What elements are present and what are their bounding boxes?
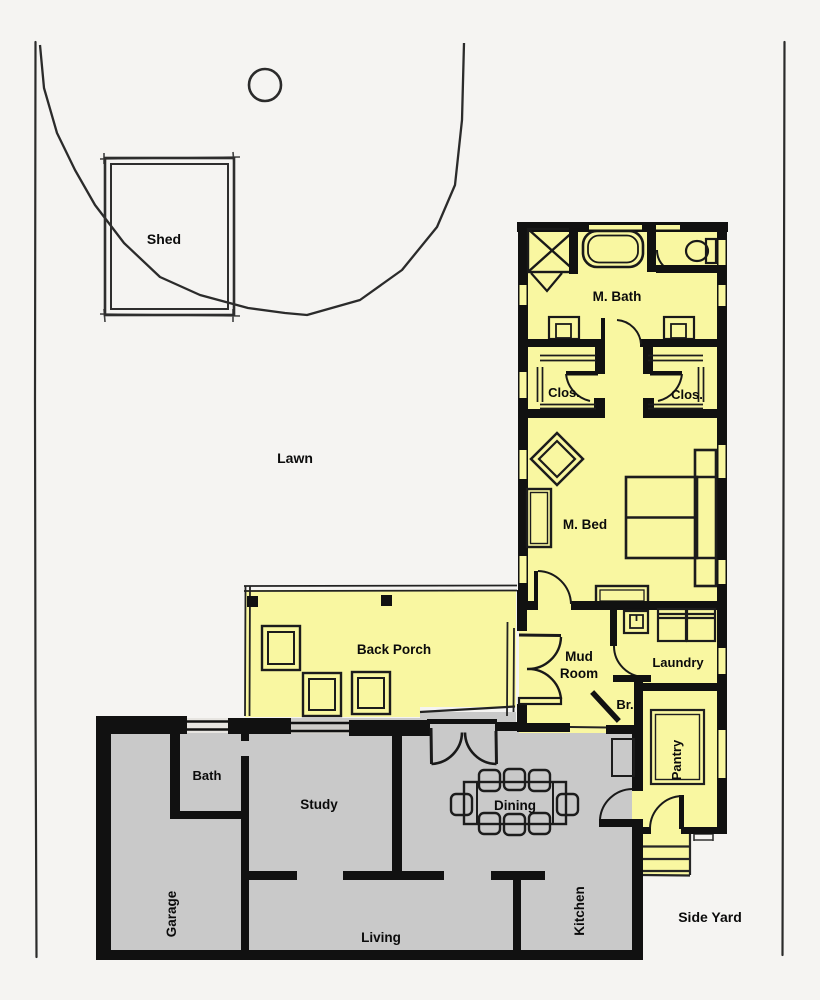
svg-text:M. Bath: M. Bath (593, 289, 642, 304)
svg-text:Lawn: Lawn (277, 450, 313, 466)
svg-text:Side Yard: Side Yard (678, 909, 742, 925)
svg-text:Garage: Garage (164, 890, 179, 937)
svg-text:Shed: Shed (147, 231, 181, 247)
svg-text:Bath: Bath (193, 768, 222, 783)
svg-text:Br.: Br. (616, 697, 633, 712)
svg-text:Dining: Dining (494, 798, 536, 813)
svg-text:Room: Room (560, 666, 598, 681)
svg-text:M. Bed: M. Bed (563, 517, 607, 532)
svg-text:Laundry: Laundry (652, 655, 704, 670)
svg-text:Kitchen: Kitchen (572, 886, 587, 936)
svg-text:Pantry: Pantry (669, 739, 684, 780)
svg-text:Study: Study (300, 797, 338, 812)
svg-text:Mud: Mud (565, 649, 593, 664)
svg-text:Clos.: Clos. (671, 387, 703, 402)
svg-text:Back Porch: Back Porch (357, 642, 431, 657)
svg-text:Living: Living (361, 930, 401, 945)
svg-text:Clos.: Clos. (548, 385, 580, 400)
